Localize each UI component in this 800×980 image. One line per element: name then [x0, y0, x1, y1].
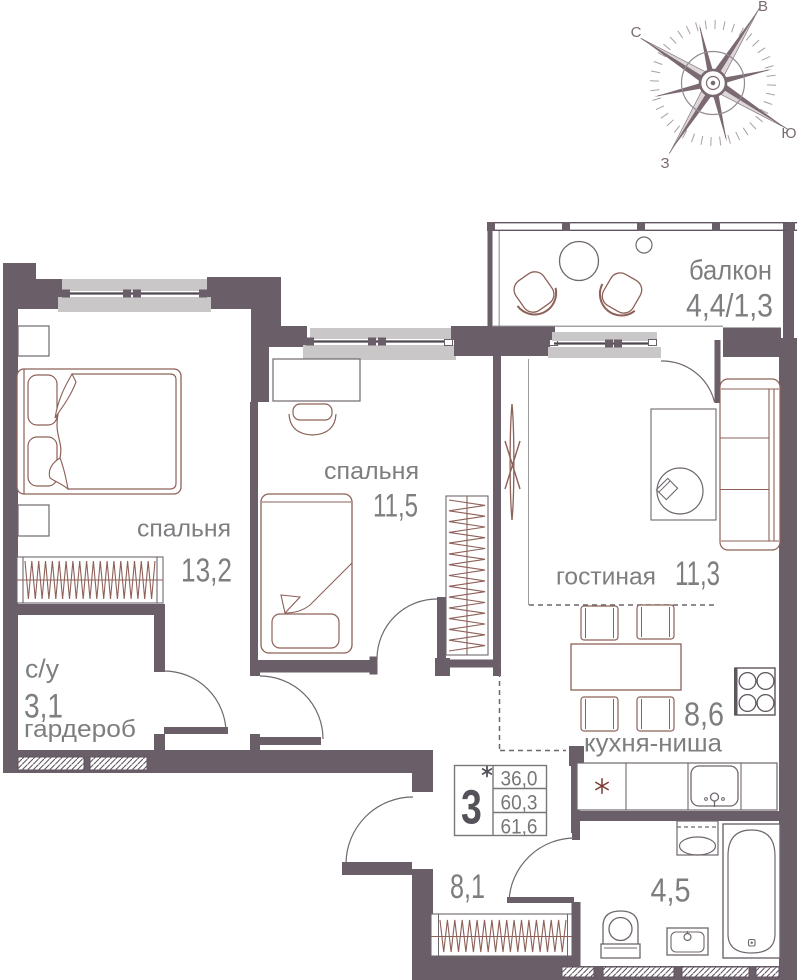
svg-text:спальня: спальня	[137, 516, 231, 543]
svg-text:гардероб: гардероб	[24, 716, 136, 743]
svg-text:13,2: 13,2	[181, 552, 232, 589]
svg-text:11,3: 11,3	[675, 555, 720, 593]
svg-text:С: С	[631, 24, 642, 41]
svg-text:спальня: спальня	[324, 458, 419, 485]
svg-text:кухня-ниша: кухня-ниша	[584, 730, 722, 758]
svg-text:с/у: с/у	[25, 654, 59, 684]
svg-text:З: З	[660, 155, 669, 172]
svg-text:36,0: 36,0	[501, 768, 538, 791]
svg-text:61,6: 61,6	[501, 816, 538, 839]
svg-text:8,6: 8,6	[684, 697, 724, 734]
svg-text:гостиная: гостиная	[556, 564, 656, 591]
svg-text:8,1: 8,1	[450, 868, 485, 906]
svg-text:балкон: балкон	[689, 255, 772, 286]
svg-text:3: 3	[461, 781, 482, 835]
svg-text:В: В	[758, 0, 768, 15]
svg-text:4,4/1,3: 4,4/1,3	[686, 288, 773, 324]
svg-text:11,5: 11,5	[373, 488, 418, 524]
svg-text:60,3: 60,3	[501, 792, 538, 815]
svg-text:Ю: Ю	[781, 125, 796, 142]
svg-text:4,5: 4,5	[651, 872, 691, 909]
